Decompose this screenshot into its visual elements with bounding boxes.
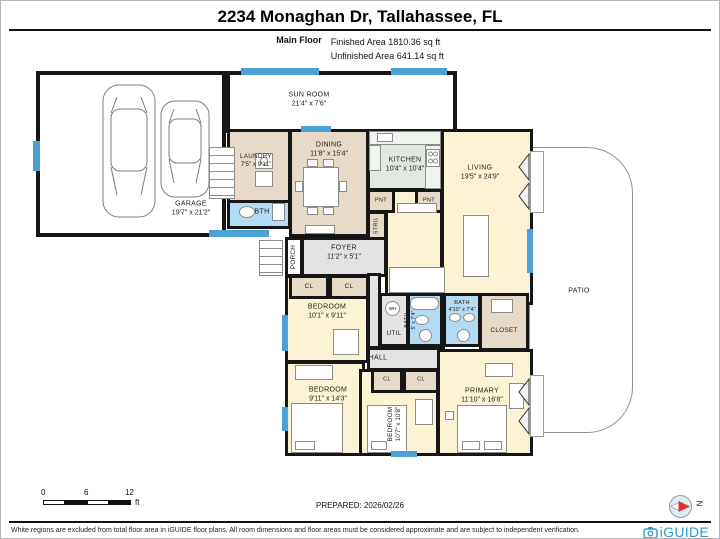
kitchen-counter bbox=[369, 145, 381, 171]
desk bbox=[333, 329, 359, 355]
window bbox=[391, 68, 447, 75]
window bbox=[282, 315, 288, 351]
finished-area: Finished Area 1810.36 sq ft bbox=[331, 35, 444, 49]
room-label-foyer: FOYER 11'2" x 5'1" bbox=[327, 244, 361, 262]
room-label-cl3: CL bbox=[383, 377, 391, 384]
desk bbox=[415, 399, 433, 425]
room-label-bedroom-3: BEDROOM 10'7" x 10'8" bbox=[387, 407, 403, 442]
toilet-icon bbox=[239, 206, 255, 218]
room-label-sun-room: SUN ROOM 21'4" x 7'6" bbox=[289, 91, 330, 109]
room-label-cl4: CL bbox=[417, 377, 425, 384]
iguide-logo-text: iGUIDE bbox=[660, 524, 709, 539]
chair bbox=[307, 159, 318, 167]
dresser bbox=[295, 365, 333, 380]
prepared-date: PREPARED: 2026/02/26 bbox=[1, 501, 719, 510]
room-label-bedroom-1: BEDROOM 10'1" x 9'11" bbox=[308, 303, 346, 321]
bench bbox=[485, 363, 513, 377]
room-label-laundry: LAUNDRY 7'5" x 9'11" bbox=[240, 153, 272, 169]
stairs-icon bbox=[209, 147, 235, 199]
room-label-living: LIVING 19'5" x 24'9" bbox=[461, 164, 499, 182]
window bbox=[241, 68, 319, 75]
toilet-icon bbox=[419, 329, 432, 342]
sideboard bbox=[305, 225, 335, 234]
room-label-closet: CLOSET bbox=[491, 327, 518, 335]
floor-plan-page: 2234 Monaghan Dr, Tallahassee, FL Main F… bbox=[0, 0, 720, 539]
room-label-hall: HALL bbox=[369, 355, 388, 364]
sink-icon bbox=[463, 313, 475, 322]
room-label-bath-2: BATH 4'10" x 7'4" bbox=[448, 300, 475, 314]
sofa bbox=[463, 215, 489, 277]
pillow bbox=[462, 441, 480, 450]
room-label-pantry-2: PNT bbox=[423, 198, 435, 205]
scale-tick-0: 0 bbox=[41, 488, 45, 497]
french-door-icon bbox=[518, 153, 531, 216]
pillow bbox=[484, 441, 502, 450]
pillow bbox=[295, 441, 315, 450]
sink-icon bbox=[272, 203, 285, 221]
floor-info: Main Floor Finished Area 1810.36 sq ft U… bbox=[1, 35, 719, 63]
floor-label: Main Floor bbox=[276, 35, 322, 63]
car-icon bbox=[159, 99, 211, 199]
header-divider bbox=[9, 29, 711, 31]
sink-icon bbox=[449, 313, 461, 322]
compass-icon: N bbox=[667, 493, 711, 523]
pillow bbox=[371, 441, 387, 450]
room-label-kitchen: KITCHEN 10'4" x 10'4" bbox=[386, 156, 424, 174]
patio-door-frame bbox=[530, 375, 544, 437]
window bbox=[282, 407, 288, 431]
stove-icon bbox=[426, 149, 440, 167]
toilet-icon bbox=[457, 329, 470, 342]
dryer-icon bbox=[255, 171, 273, 187]
footer-divider bbox=[9, 521, 711, 523]
room-label-bath-1: BATH 5' x 7'4" bbox=[404, 310, 418, 329]
patio-door-frame bbox=[530, 151, 544, 213]
room-label-bth: BTH bbox=[255, 209, 270, 218]
disclaimer-text: White regions are excluded from total fl… bbox=[11, 527, 581, 534]
water-heater-icon: WH bbox=[385, 301, 400, 316]
page-title: 2234 Monaghan Dr, Tallahassee, FL bbox=[1, 7, 719, 27]
french-door-icon bbox=[518, 378, 531, 441]
window bbox=[527, 229, 533, 273]
area-info: Finished Area 1810.36 sq ft Unfinished A… bbox=[331, 35, 444, 63]
sink-icon bbox=[377, 133, 393, 142]
room-label-pantry-1: PNT bbox=[375, 198, 387, 205]
room-label-patio: PATIO bbox=[568, 288, 589, 297]
car-icon bbox=[101, 83, 157, 219]
unfinished-area: Unfinished Area 641.14 sq ft bbox=[331, 49, 444, 63]
room-label-dining: DINING 11'8" x 15'4" bbox=[310, 141, 348, 159]
dresser bbox=[491, 299, 513, 313]
room-label-bedroom-2: BEDROOM 9'11" x 14'3" bbox=[309, 386, 347, 404]
room-label-cl2: CL bbox=[345, 283, 354, 291]
window bbox=[301, 126, 331, 132]
chair bbox=[323, 207, 334, 215]
window bbox=[33, 141, 40, 171]
room-label-storage: STRG bbox=[374, 218, 381, 234]
room-label-util: UTIL bbox=[387, 330, 402, 338]
camera-icon bbox=[643, 526, 658, 539]
window bbox=[209, 230, 269, 237]
chair bbox=[323, 159, 334, 167]
nightstand bbox=[445, 411, 454, 420]
chair bbox=[295, 181, 303, 192]
room-sun-room bbox=[226, 71, 457, 133]
dining-table bbox=[303, 167, 339, 207]
room-label-primary: PRIMARY 11'10" x 16'8" bbox=[461, 387, 503, 405]
room-label-garage: GARAGE 19'7" x 21'2" bbox=[172, 200, 210, 218]
porch-steps-icon bbox=[259, 240, 283, 276]
console-table bbox=[397, 203, 437, 213]
window bbox=[391, 451, 417, 457]
room-label-cl1: CL bbox=[305, 283, 314, 291]
room-label-porch: PORCH bbox=[290, 245, 298, 269]
chair bbox=[307, 207, 318, 215]
scale-tick-12: 12 bbox=[125, 488, 134, 497]
compass-north-label: N bbox=[694, 501, 703, 507]
sofa bbox=[389, 267, 445, 293]
iguide-logo: iGUIDE bbox=[643, 524, 709, 539]
bathtub-icon bbox=[410, 297, 439, 310]
chair bbox=[339, 181, 347, 192]
scale-tick-6: 6 bbox=[84, 488, 88, 497]
